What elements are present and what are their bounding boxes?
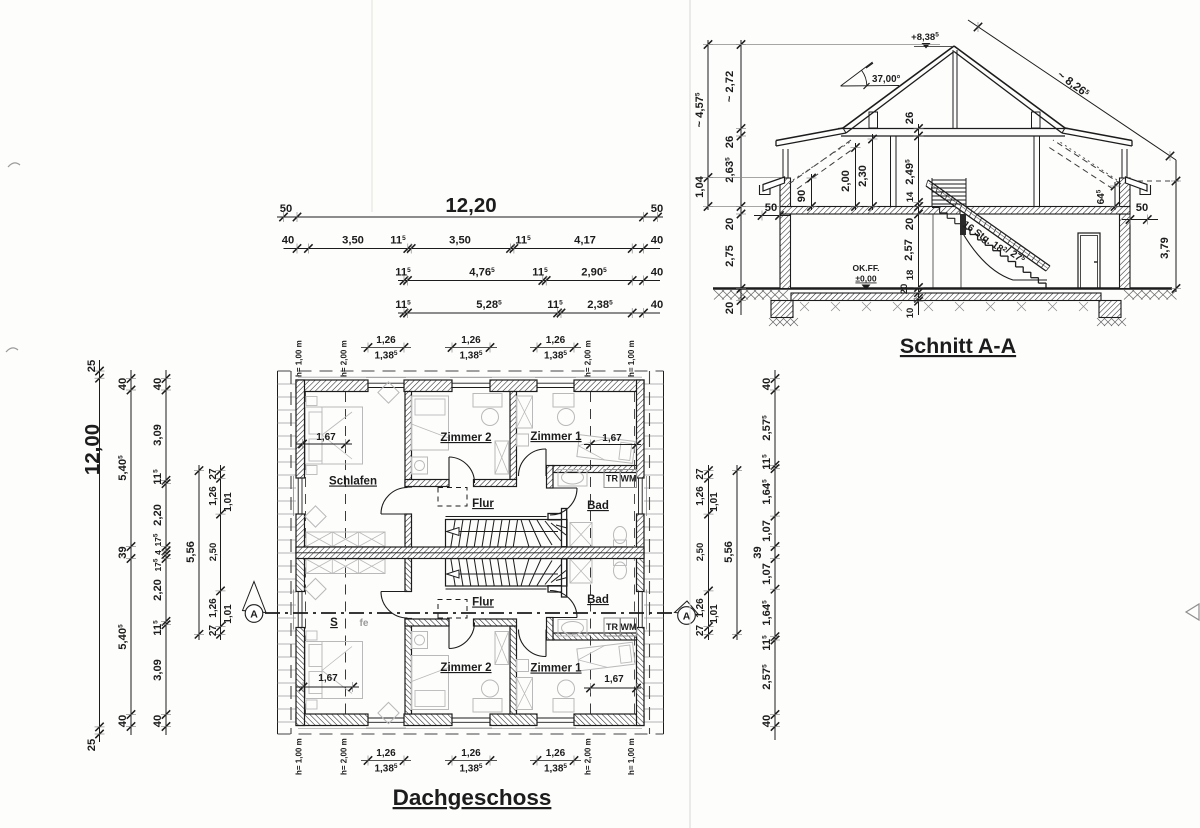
svg-text:A: A bbox=[250, 609, 258, 621]
svg-text:1,67: 1,67 bbox=[604, 674, 624, 685]
svg-text:90: 90 bbox=[796, 190, 808, 202]
svg-text:h= 1,00 m: h= 1,00 m bbox=[627, 738, 636, 775]
svg-text:1,26: 1,26 bbox=[376, 748, 396, 759]
svg-text:12,20: 12,20 bbox=[445, 194, 496, 217]
svg-text:40: 40 bbox=[651, 235, 663, 247]
svg-text:1,07: 1,07 bbox=[761, 563, 773, 585]
svg-text:h= 2,00 m: h= 2,00 m bbox=[340, 738, 349, 775]
svg-text:2,57: 2,57 bbox=[903, 239, 915, 261]
svg-text:2,50: 2,50 bbox=[695, 543, 706, 562]
svg-text:Dachgeschoss: Dachgeschoss bbox=[393, 785, 552, 810]
svg-text:Bad: Bad bbox=[587, 594, 609, 606]
svg-text:h= 1,00 m: h= 1,00 m bbox=[295, 738, 304, 775]
svg-text:1,01: 1,01 bbox=[223, 492, 234, 512]
svg-text:3,09: 3,09 bbox=[152, 659, 164, 681]
svg-text:40: 40 bbox=[152, 715, 164, 727]
svg-text:1,26: 1,26 bbox=[695, 598, 706, 618]
svg-text:2,20: 2,20 bbox=[152, 504, 164, 526]
svg-text:27: 27 bbox=[208, 468, 219, 480]
svg-text:12,00: 12,00 bbox=[81, 424, 104, 475]
svg-text:Flur: Flur bbox=[472, 498, 494, 510]
svg-text:TR: TR bbox=[606, 474, 618, 484]
svg-text:18: 18 bbox=[905, 270, 916, 281]
svg-text:1,67: 1,67 bbox=[318, 673, 338, 684]
svg-text:3,79: 3,79 bbox=[1159, 237, 1171, 259]
svg-text:1,26: 1,26 bbox=[208, 598, 219, 618]
svg-text:OK.FF.: OK.FF. bbox=[853, 263, 880, 273]
svg-text:1,26: 1,26 bbox=[695, 486, 706, 506]
svg-text:2,50: 2,50 bbox=[208, 543, 219, 562]
svg-text:2,00: 2,00 bbox=[840, 170, 852, 192]
svg-text:~ 2,72: ~ 2,72 bbox=[724, 71, 736, 102]
svg-text:4: 4 bbox=[153, 550, 163, 555]
svg-text:4,17: 4,17 bbox=[574, 235, 596, 247]
svg-text:h= 1,00 m: h= 1,00 m bbox=[627, 340, 636, 377]
svg-text:Schlafen: Schlafen bbox=[329, 476, 377, 488]
svg-text:26: 26 bbox=[904, 112, 916, 124]
svg-text:20: 20 bbox=[904, 218, 916, 230]
svg-text:Zimmer 1: Zimmer 1 bbox=[530, 663, 582, 675]
svg-text:20: 20 bbox=[899, 284, 910, 295]
svg-text:37,00°: 37,00° bbox=[872, 74, 901, 85]
svg-text:1,26: 1,26 bbox=[461, 335, 481, 346]
svg-text:50: 50 bbox=[1136, 202, 1148, 214]
svg-text:±0,00: ±0,00 bbox=[855, 274, 876, 284]
svg-text:h= 2,00 m: h= 2,00 m bbox=[584, 738, 593, 775]
svg-text:TR: TR bbox=[606, 622, 618, 632]
svg-text:Bad: Bad bbox=[587, 500, 609, 512]
svg-text:20: 20 bbox=[724, 302, 736, 314]
svg-text:1,01: 1,01 bbox=[709, 604, 720, 624]
svg-text:10: 10 bbox=[905, 308, 916, 319]
svg-text:1,67: 1,67 bbox=[602, 433, 622, 444]
svg-text:40: 40 bbox=[761, 715, 773, 727]
svg-text:1,67: 1,67 bbox=[316, 432, 336, 443]
svg-text:fe: fe bbox=[360, 618, 369, 629]
svg-text:h= 1,00 m: h= 1,00 m bbox=[295, 340, 304, 377]
svg-text:20: 20 bbox=[724, 218, 736, 230]
svg-text:1,07: 1,07 bbox=[761, 520, 773, 542]
svg-text:2,20: 2,20 bbox=[152, 579, 164, 601]
svg-text:h= 2,00 m: h= 2,00 m bbox=[584, 340, 593, 377]
svg-text:40: 40 bbox=[117, 715, 129, 727]
svg-text:1,26: 1,26 bbox=[546, 335, 566, 346]
svg-text:40: 40 bbox=[651, 267, 663, 279]
svg-text:50: 50 bbox=[765, 202, 777, 214]
svg-text:1,26: 1,26 bbox=[546, 748, 566, 759]
svg-text:14: 14 bbox=[905, 191, 916, 202]
svg-text:40: 40 bbox=[651, 299, 663, 311]
svg-text:25: 25 bbox=[86, 739, 98, 751]
svg-text:40: 40 bbox=[761, 378, 773, 390]
svg-text:~ 4,575: ~ 4,575 bbox=[694, 92, 706, 127]
svg-text:39: 39 bbox=[117, 546, 129, 558]
svg-text:5,56: 5,56 bbox=[723, 541, 735, 563]
svg-text:S: S bbox=[330, 617, 338, 629]
svg-text:50: 50 bbox=[280, 203, 292, 215]
svg-text:1,26: 1,26 bbox=[208, 486, 219, 506]
svg-text:+8,385: +8,385 bbox=[911, 32, 939, 43]
svg-text:3,50: 3,50 bbox=[449, 235, 471, 247]
svg-text:27: 27 bbox=[695, 468, 706, 480]
svg-text:Zimmer 1: Zimmer 1 bbox=[530, 431, 582, 443]
svg-text:Zimmer 2: Zimmer 2 bbox=[440, 432, 491, 444]
svg-text:1,26: 1,26 bbox=[376, 335, 396, 346]
svg-text:Schnitt A-A: Schnitt A-A bbox=[900, 334, 1016, 358]
svg-text:40: 40 bbox=[282, 235, 294, 247]
svg-text:1,04: 1,04 bbox=[694, 175, 706, 198]
svg-text:50: 50 bbox=[651, 203, 663, 215]
svg-text:WM: WM bbox=[621, 622, 637, 632]
svg-text:2,30: 2,30 bbox=[857, 165, 869, 187]
svg-text:3,09: 3,09 bbox=[152, 424, 164, 446]
svg-text:27: 27 bbox=[695, 625, 706, 637]
svg-text:WM: WM bbox=[621, 474, 637, 484]
svg-text:1,01: 1,01 bbox=[223, 604, 234, 624]
svg-text:h= 2,00 m: h= 2,00 m bbox=[340, 340, 349, 377]
svg-text:40: 40 bbox=[152, 378, 164, 390]
svg-text:3,50: 3,50 bbox=[342, 235, 364, 247]
svg-text:Flur: Flur bbox=[472, 597, 494, 609]
svg-text:1,01: 1,01 bbox=[709, 492, 720, 512]
svg-text:5,56: 5,56 bbox=[185, 541, 197, 563]
svg-text:1,26: 1,26 bbox=[461, 748, 481, 759]
svg-text:Zimmer 2: Zimmer 2 bbox=[440, 662, 491, 674]
svg-text:39: 39 bbox=[752, 546, 764, 558]
svg-text:27: 27 bbox=[208, 625, 219, 637]
svg-text:25: 25 bbox=[86, 360, 98, 372]
svg-text:2,75: 2,75 bbox=[724, 245, 736, 267]
svg-text:40: 40 bbox=[117, 378, 129, 390]
svg-text:26: 26 bbox=[724, 136, 736, 148]
